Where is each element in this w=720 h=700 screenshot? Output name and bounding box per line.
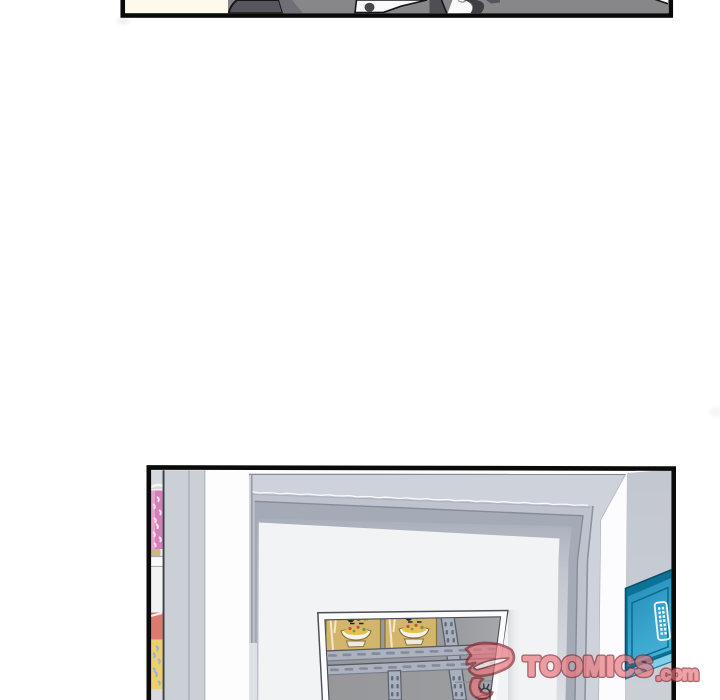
svg-text:.com: .com	[656, 664, 698, 685]
svg-text:TOOMICS: TOOMICS	[524, 651, 654, 681]
